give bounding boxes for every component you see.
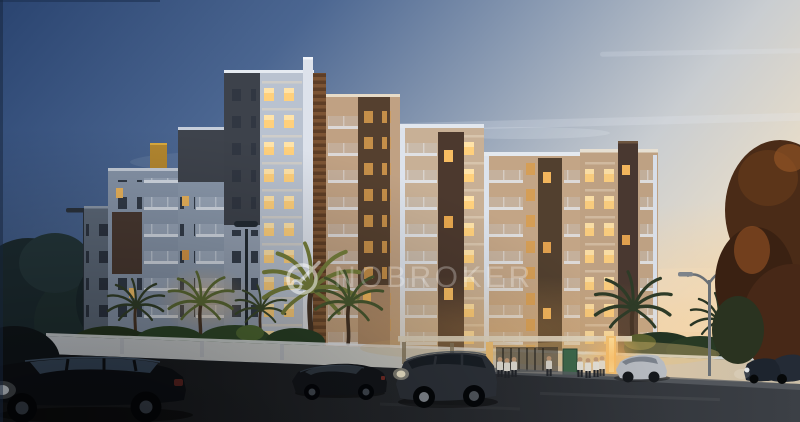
real-estate-photo: NOBROKER (0, 0, 800, 422)
left-edge-strip (0, 0, 3, 422)
dusk-scene-svg (0, 0, 800, 422)
vignette (0, 0, 800, 422)
top-edge-seam (0, 0, 160, 2)
